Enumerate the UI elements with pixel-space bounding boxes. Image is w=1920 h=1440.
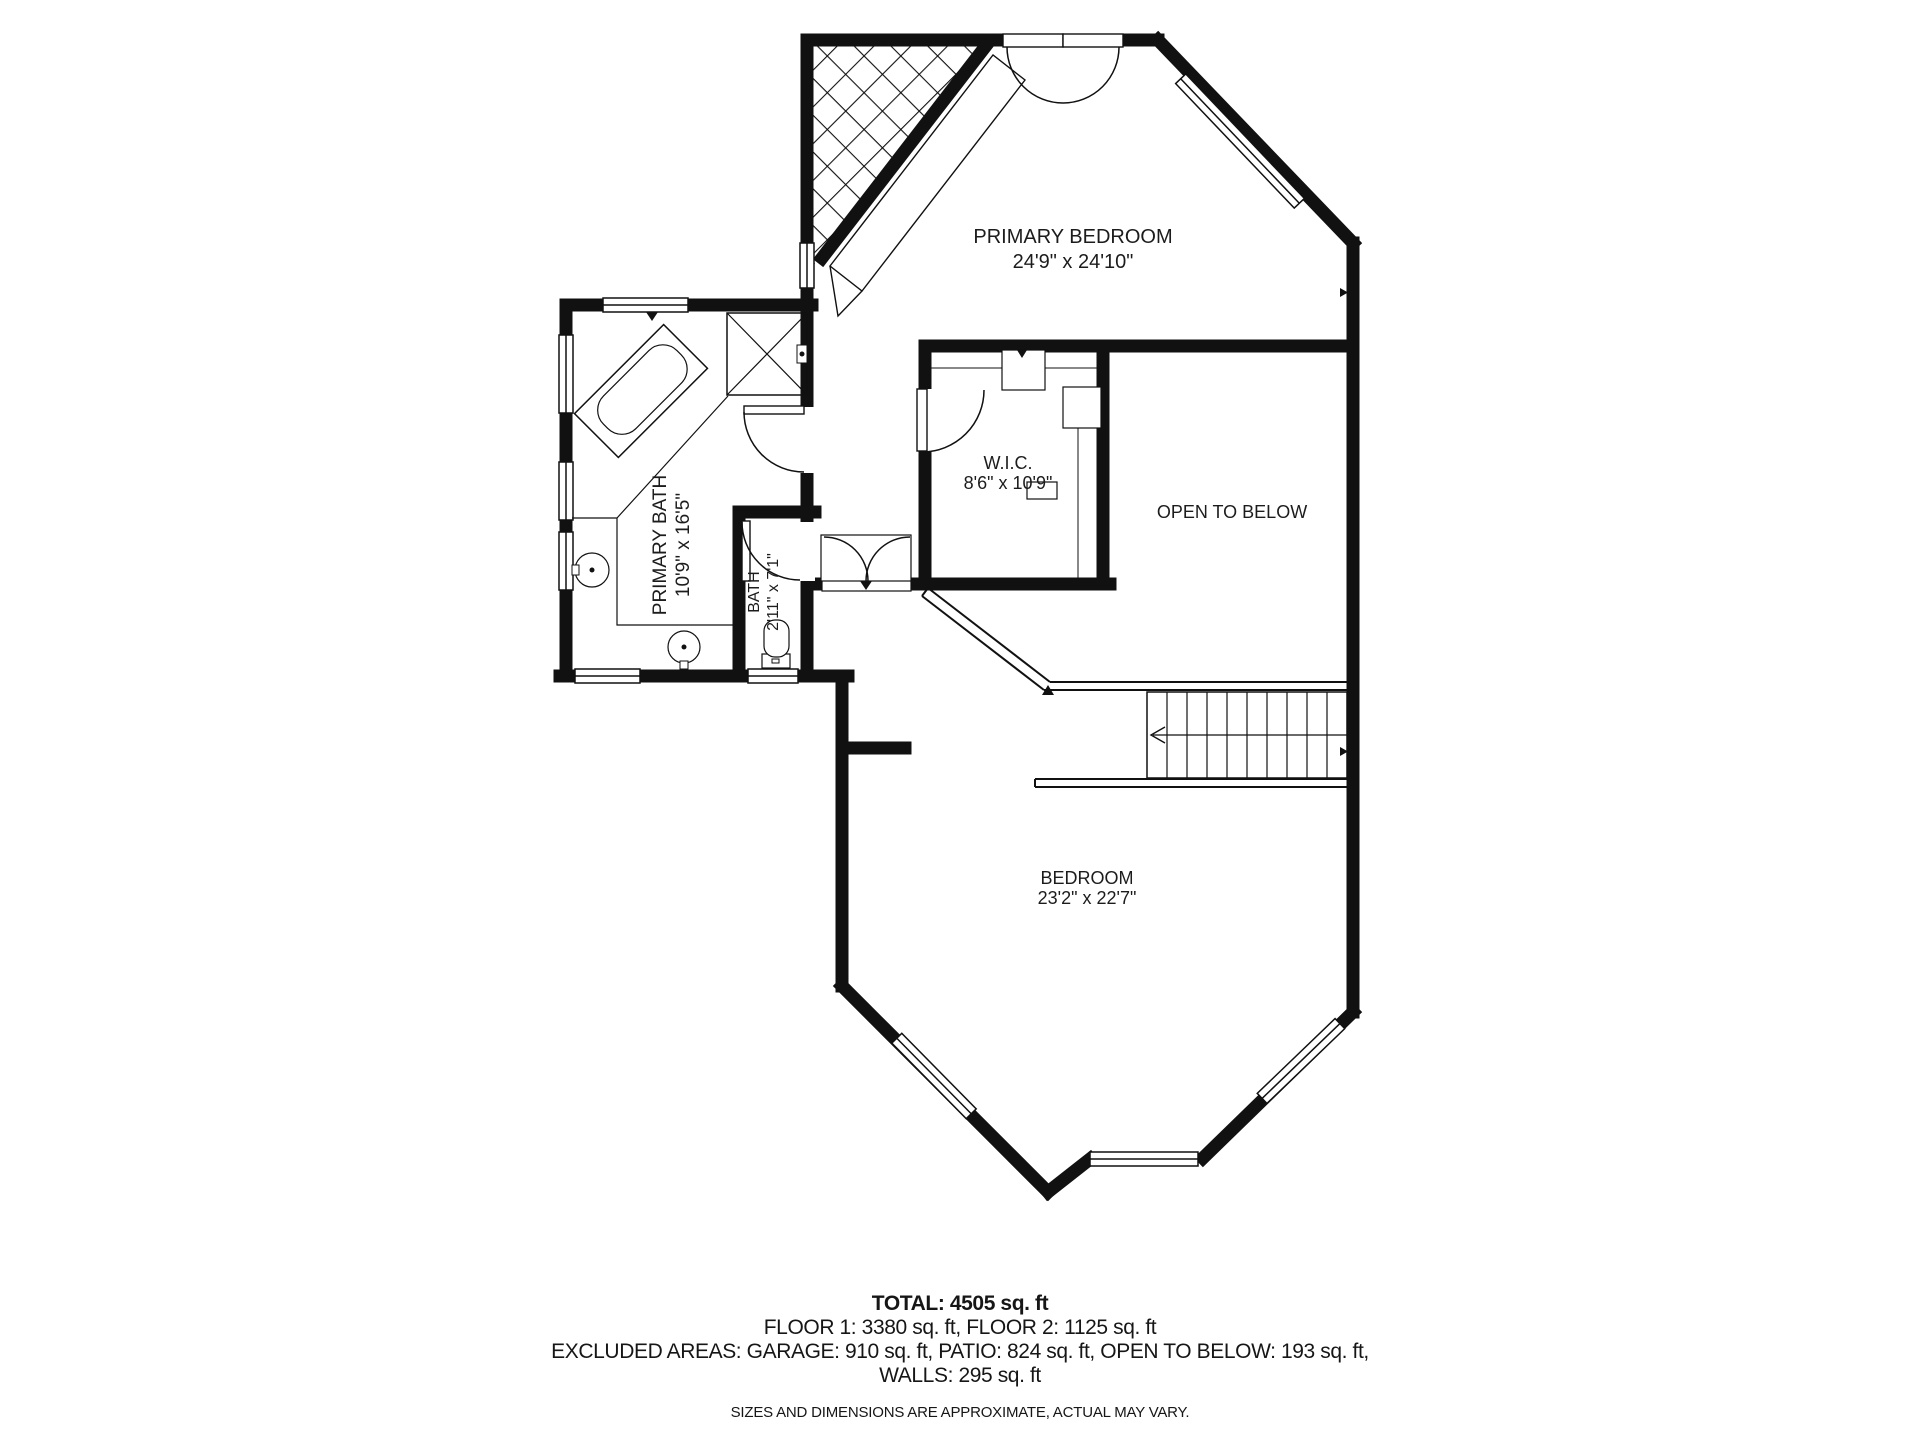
window: [559, 532, 573, 590]
window: [1090, 1152, 1198, 1166]
footer-excluded: EXCLUDED AREAS: GARAGE: 910 sq. ft, PATI…: [0, 1340, 1920, 1364]
room-name: PRIMARY BEDROOM: [973, 225, 1172, 250]
window: [559, 335, 573, 413]
room-name: BEDROOM: [1038, 868, 1137, 888]
room-label-bedroom: BEDROOM 23'2" x 22'7": [1038, 868, 1137, 908]
room-name: OPEN TO BELOW: [1157, 501, 1307, 524]
room-dims: 8'6" x 10'9": [964, 473, 1053, 493]
window: [1257, 1019, 1345, 1104]
window: [748, 669, 798, 683]
room-dims: 23'2" x 22'7": [1038, 888, 1137, 908]
room-label-primary-bedroom: PRIMARY BEDROOM 24'9" x 24'10": [973, 225, 1172, 275]
double-door: [1003, 34, 1123, 103]
door-openings: [799, 243, 932, 581]
room-label-wic: W.I.C. 8'6" x 10'9": [964, 453, 1053, 493]
window: [800, 243, 814, 288]
room-label-primary-bath: PRIMARY BATH 10'9" x 16'5": [649, 475, 695, 615]
room-dims: 24'9" x 24'10": [973, 250, 1172, 275]
room-dims: 2'11" x 7'1": [764, 553, 783, 631]
room-label-open-to-below: OPEN TO BELOW: [1157, 501, 1307, 524]
shower-icon: [727, 313, 807, 395]
footer-floors: FLOOR 1: 3380 sq. ft, FLOOR 2: 1125 sq. …: [0, 1316, 1920, 1340]
double-door: [821, 535, 911, 591]
door: [744, 406, 804, 472]
footer-disclaimer: SIZES AND DIMENSIONS ARE APPROXIMATE, AC…: [0, 1404, 1920, 1421]
railings: [922, 588, 1347, 787]
door: [917, 389, 984, 452]
floorplan-page: PRIMARY BEDROOM 24'9" x 24'10" W.I.C. 8'…: [0, 0, 1920, 1440]
room-name: PRIMARY BATH: [649, 475, 672, 615]
sink-icon: [572, 553, 609, 587]
window: [575, 669, 640, 683]
floorplan-drawing: [0, 0, 1920, 1440]
window: [603, 298, 688, 312]
staircase: [1042, 685, 1347, 778]
room-name: BATH: [745, 553, 764, 631]
room-name: W.I.C.: [964, 453, 1053, 473]
window: [559, 462, 573, 520]
window: [892, 1033, 976, 1118]
exterior-walls: [560, 40, 1353, 1192]
bathtub-icon: [575, 325, 708, 458]
footer-total: TOTAL: 4505 sq. ft: [0, 1292, 1920, 1316]
sink-icon: [668, 631, 700, 669]
room-dims: 10'9" x 16'5": [672, 475, 695, 615]
room-label-bath: BATH 2'11" x 7'1": [745, 553, 783, 631]
footer-walls: WALLS: 295 sq. ft: [0, 1364, 1920, 1388]
window: [1176, 74, 1305, 208]
